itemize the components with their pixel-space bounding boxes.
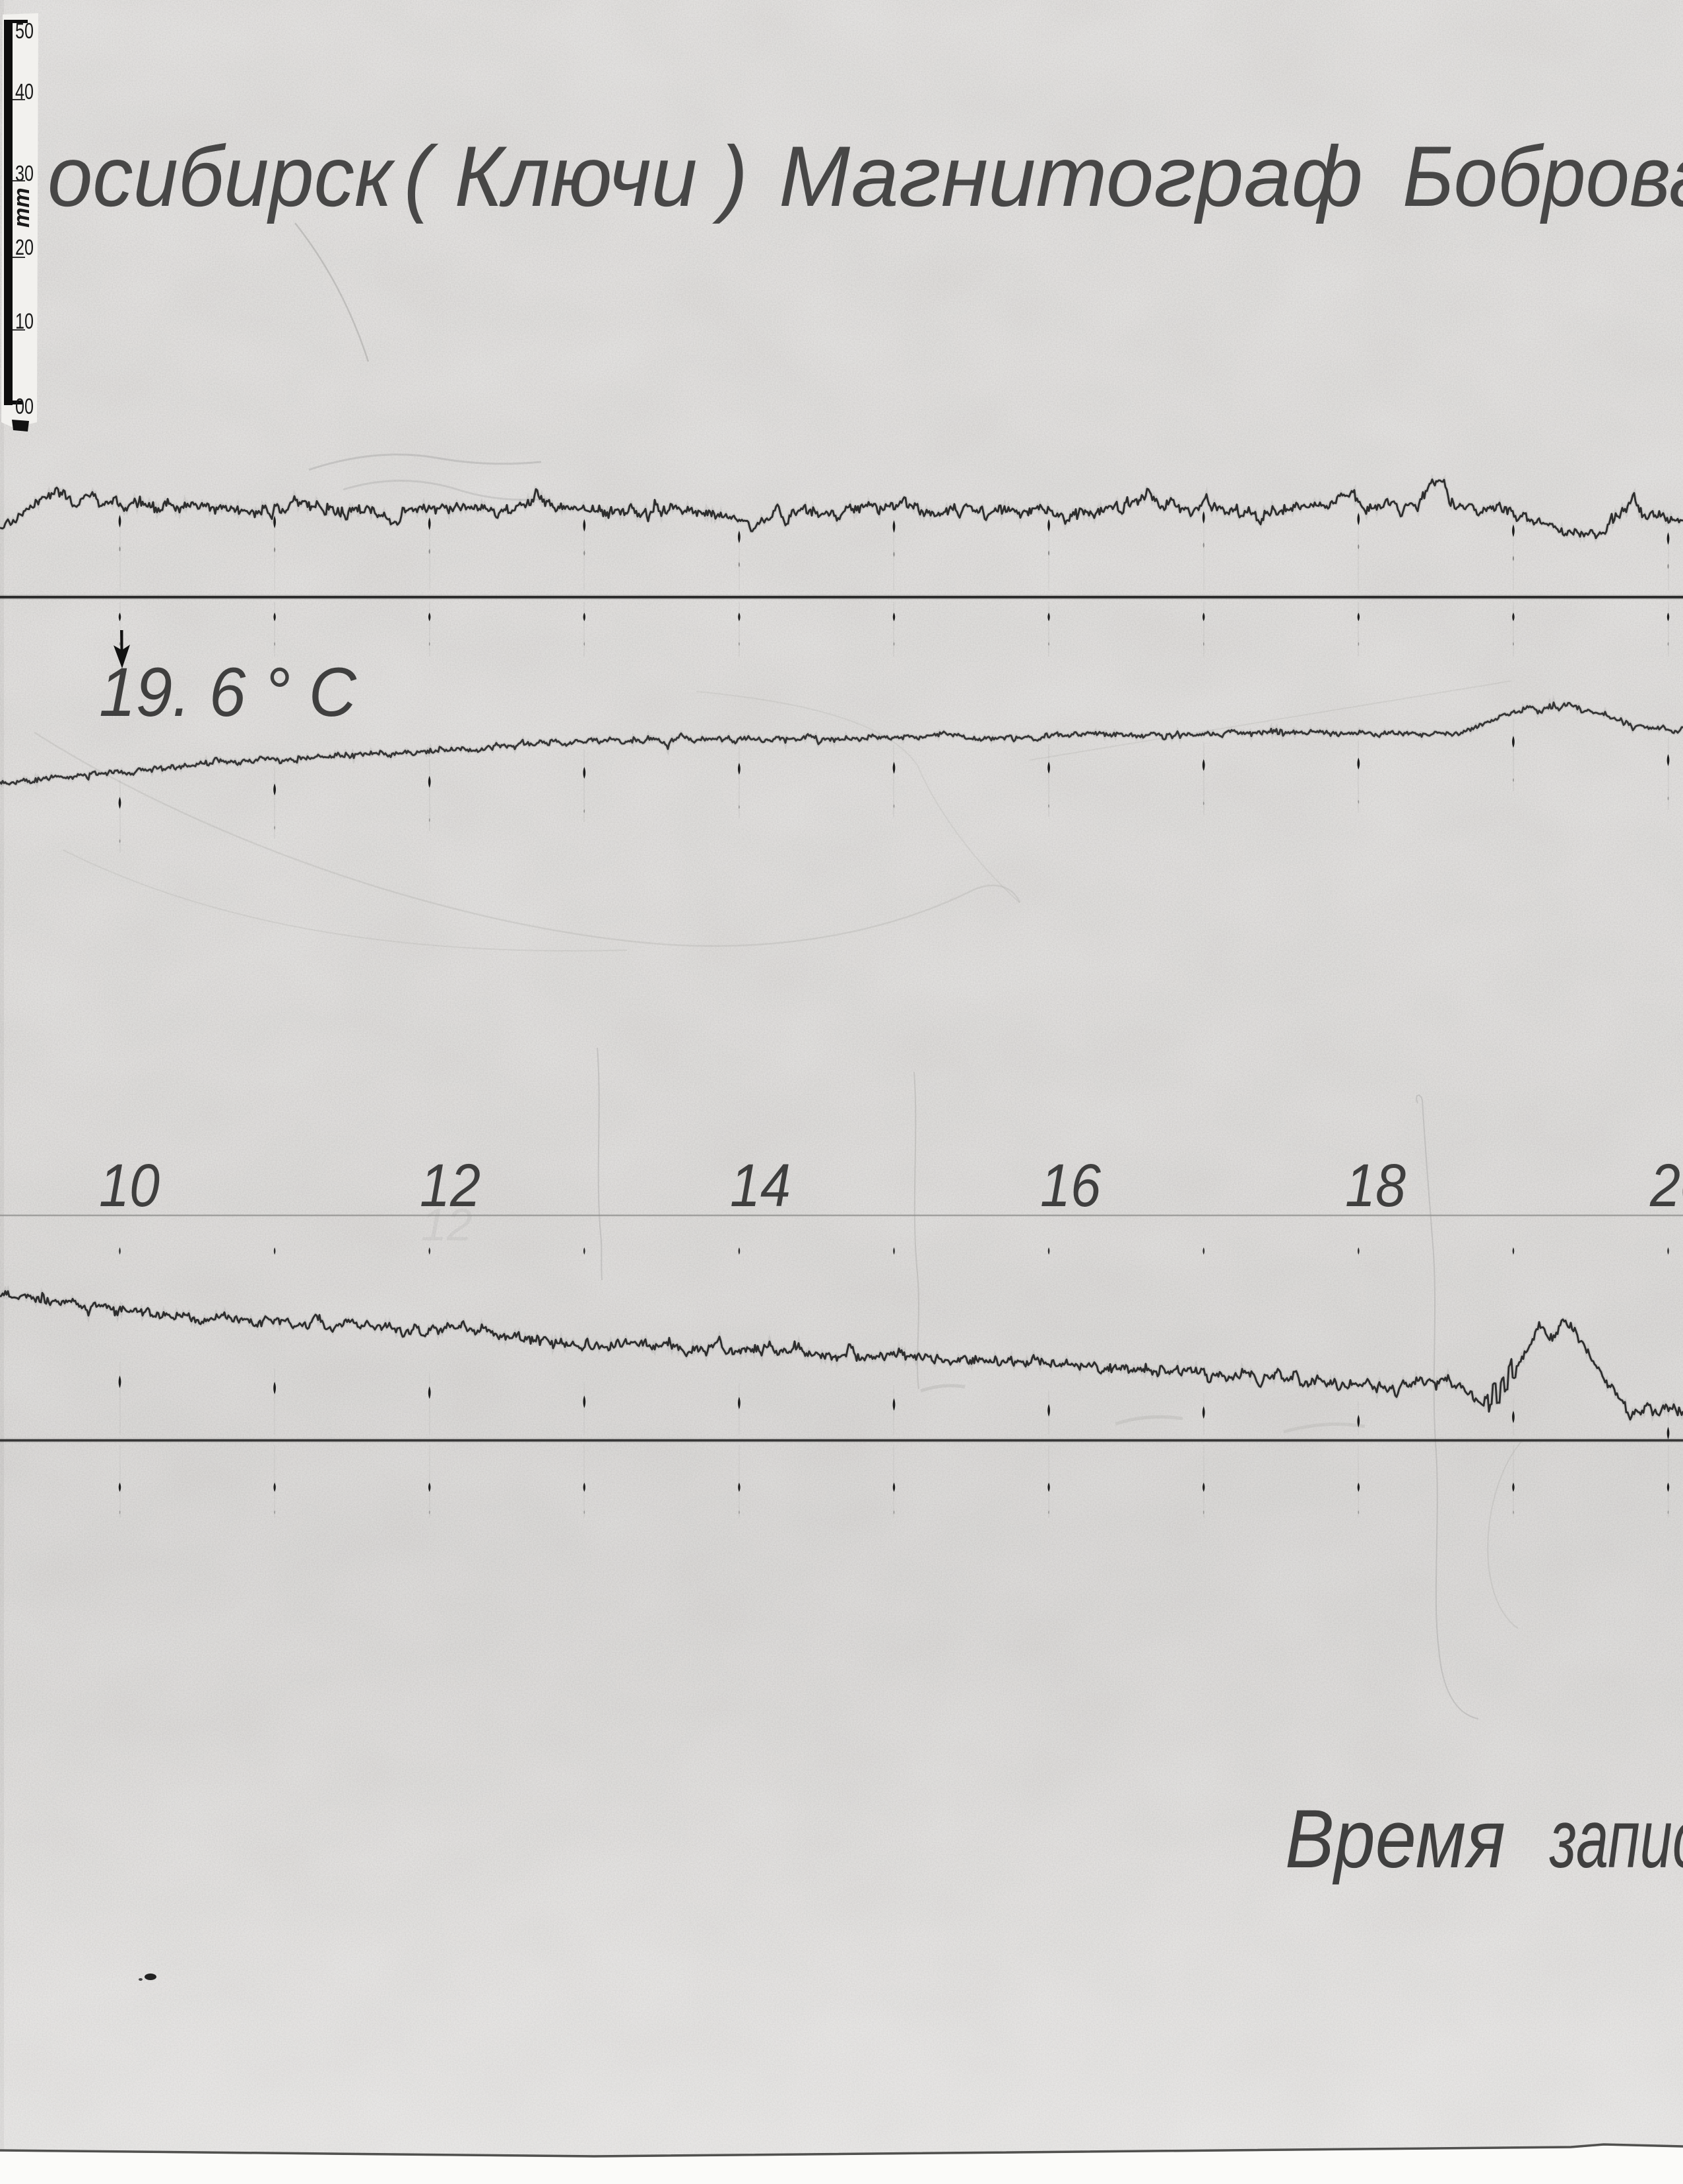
svg-text:18: 18 — [1345, 1152, 1406, 1219]
svg-text:00: 00 — [15, 394, 34, 418]
svg-text:30: 30 — [15, 161, 34, 185]
svg-text:mm: mm — [9, 188, 34, 228]
svg-text:Время: Время — [1285, 1793, 1505, 1885]
svg-text:20: 20 — [1649, 1152, 1683, 1219]
svg-text:Боброва: Боброва — [1402, 128, 1683, 224]
svg-text:12: 12 — [421, 1199, 473, 1250]
svg-text:20: 20 — [15, 235, 34, 259]
svg-text:10: 10 — [99, 1152, 160, 1219]
svg-text:( Ключи ): ( Ключи ) — [404, 128, 748, 224]
svg-text:14: 14 — [730, 1152, 791, 1219]
svg-text:Магнитограф: Магнитограф — [779, 128, 1363, 224]
svg-text:запис: запис — [1549, 1793, 1683, 1885]
svg-text:16: 16 — [1040, 1152, 1102, 1219]
svg-text:осибирск: осибирск — [48, 128, 395, 224]
svg-text:19. 6 ° C: 19. 6 ° C — [99, 654, 357, 731]
svg-text:50: 50 — [15, 18, 34, 43]
